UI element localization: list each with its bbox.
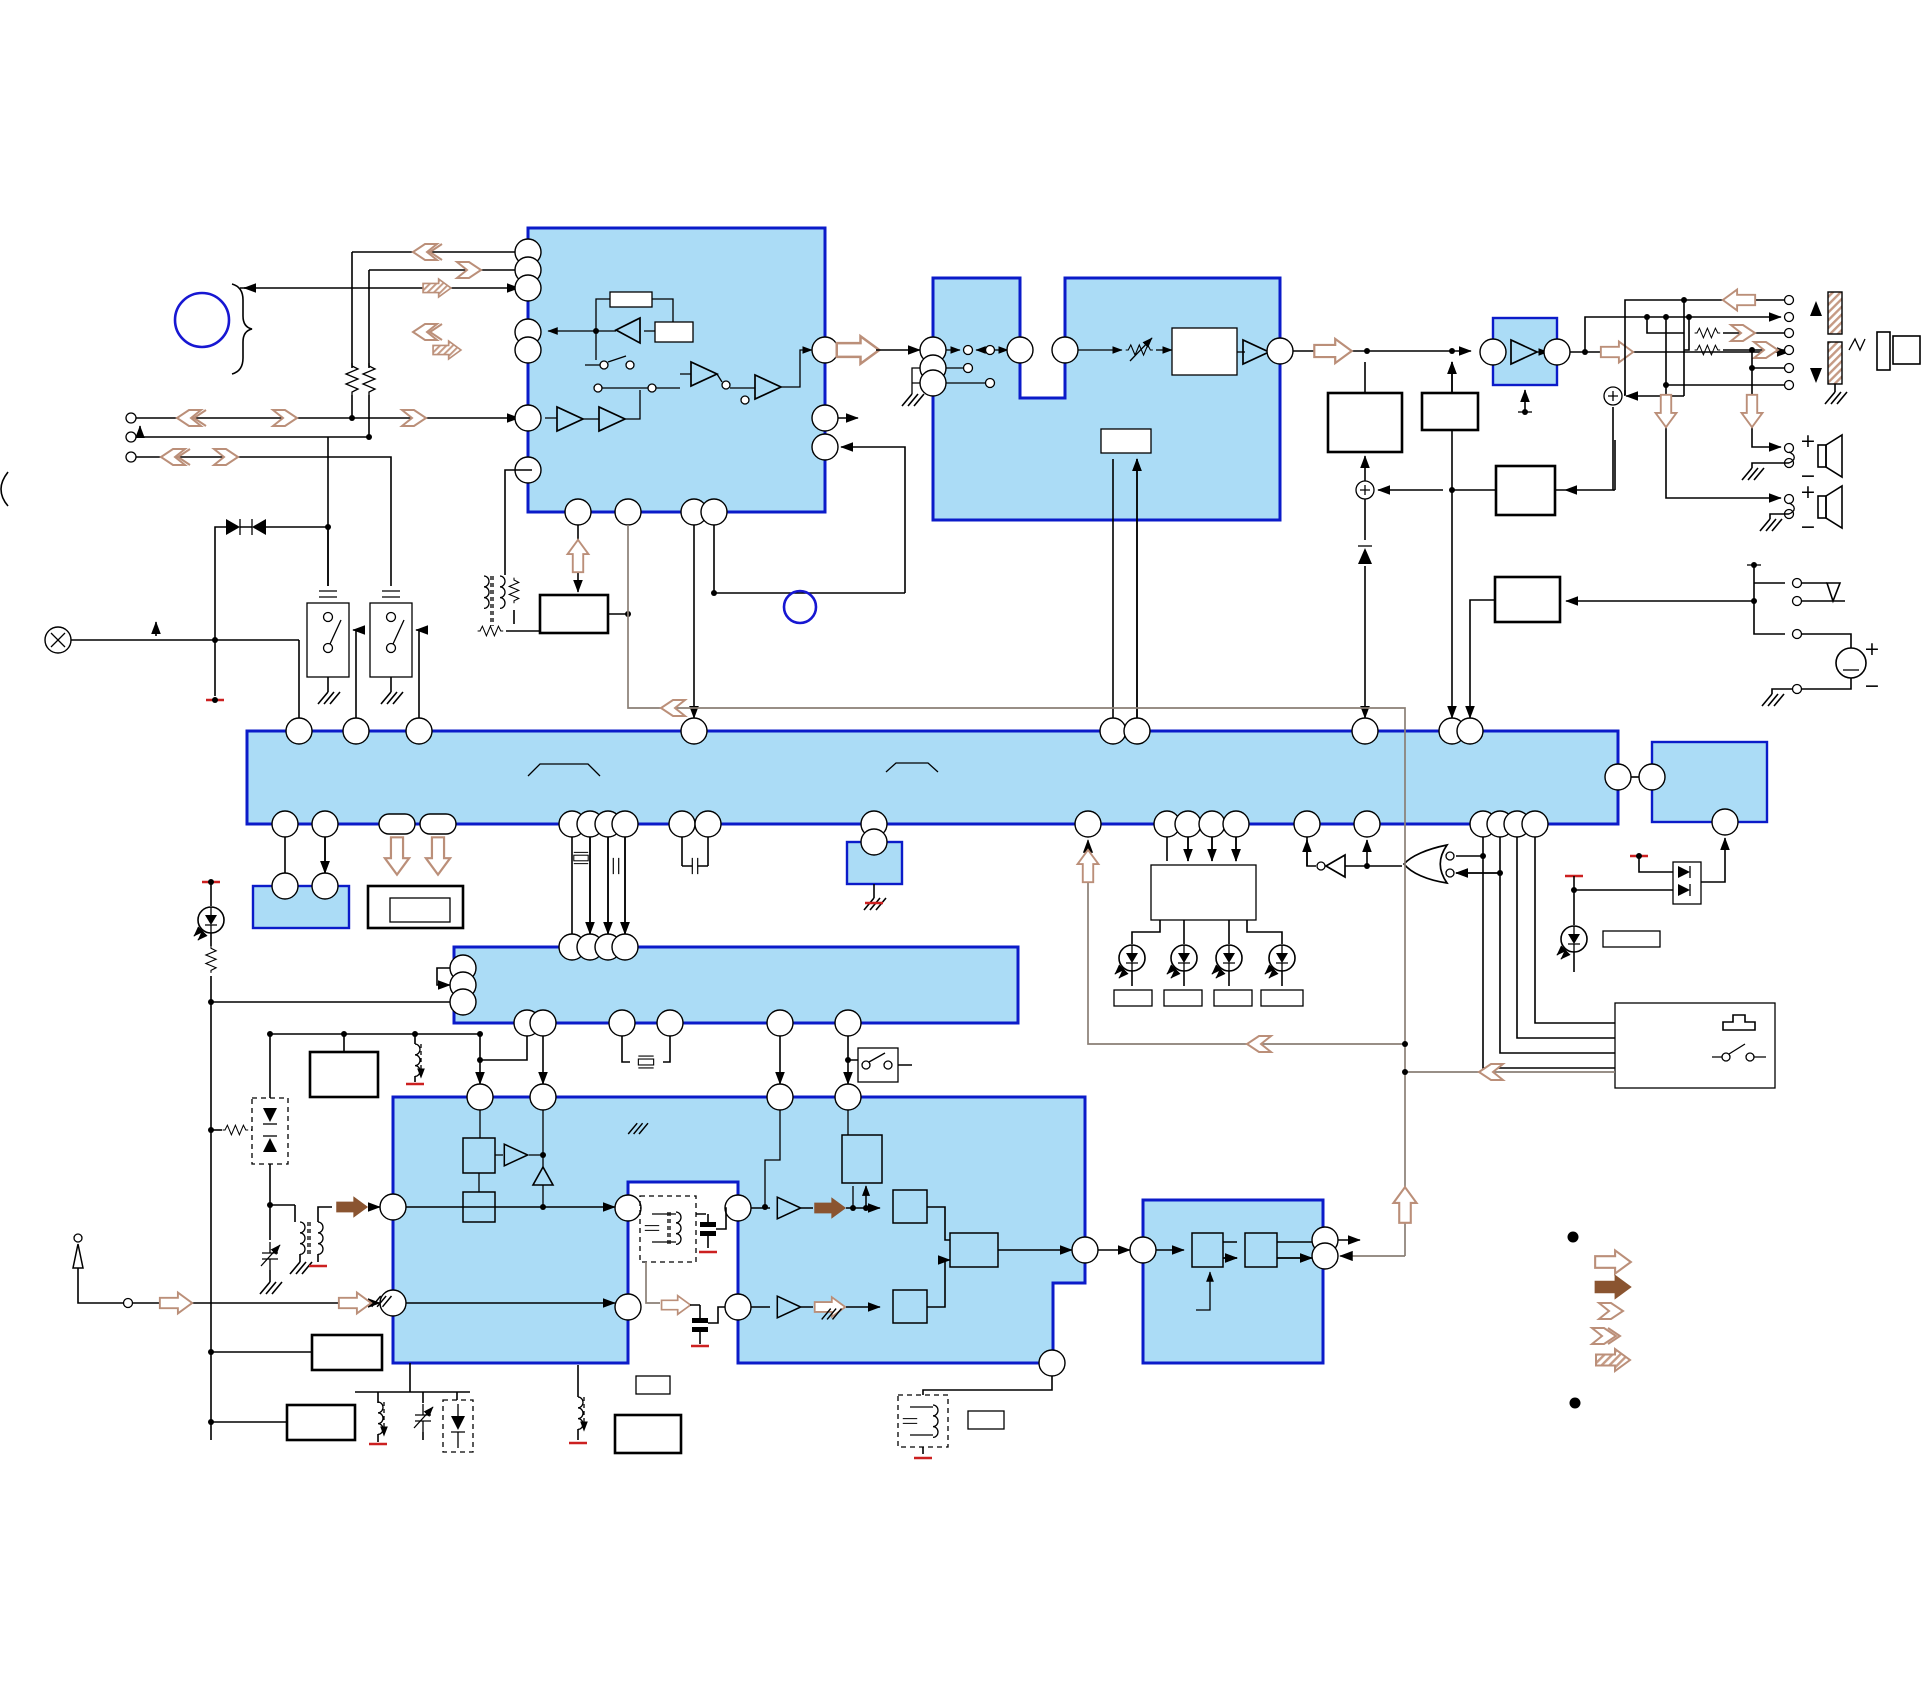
motor-icon [784,591,816,623]
cd-disc-icon [175,284,252,374]
antenna [73,1234,380,1313]
ic-block-system-controller [247,718,1631,837]
led-icon [1265,945,1295,978]
legend-outline-arrow [1595,1250,1631,1273]
speaker-left-icon [1818,435,1842,477]
dc-plug-icon [1827,583,1840,601]
battery-minus-sign: − [1864,675,1880,697]
ic-block-stereo-decoder [1130,1200,1360,1363]
battery-icon [1836,648,1866,678]
legend-solid-arrow [1595,1275,1631,1298]
jack-body-upper [1828,292,1842,334]
svg-text:−: − [1800,516,1816,538]
power-led-icon [1557,926,1587,959]
aux-input-connector [45,519,331,703]
block-diagram-page: + − + − + − [0,0,1925,1684]
svg-text:+: + [1800,481,1816,503]
main-audio-line [1293,339,1471,363]
speaker-plus-sign: + [1800,430,1816,452]
legend-hatched-arrow [1596,1349,1630,1371]
edge-brace-icon [1,472,8,506]
legend-bullet [1568,1232,1579,1243]
key-switch-block [1483,837,1775,1088]
led-icon [1167,945,1197,978]
ic-block-reset [1631,742,1767,835]
or-gate-icon [1404,845,1447,883]
below-bar-left-circuits [253,829,902,934]
speaker-right-icon [1818,486,1842,528]
ic-block-decoder [515,228,838,525]
legend-chevron-arrow [1599,1303,1623,1319]
led-indicator-section [1114,837,1303,1006]
led-icon [1212,945,1242,978]
ic-block-audio-processor [902,278,1293,520]
battery-plus-sign: + [1864,638,1880,660]
volume-control-boxes [1328,362,1746,718]
jack-body-lower [1828,342,1842,384]
legend-double-chevron-arrow [1592,1328,1620,1344]
legend-bullet [1570,1398,1581,1409]
headphone-jack-section [1582,290,1920,498]
logic-and-power-led [1307,837,1725,972]
power-section: + − [1555,440,1880,706]
ic-block-tuner [380,1034,1130,1376]
legend [1568,1232,1631,1409]
led-icon [1115,945,1145,978]
schematic-canvas: + − + − + − [0,0,1925,1684]
